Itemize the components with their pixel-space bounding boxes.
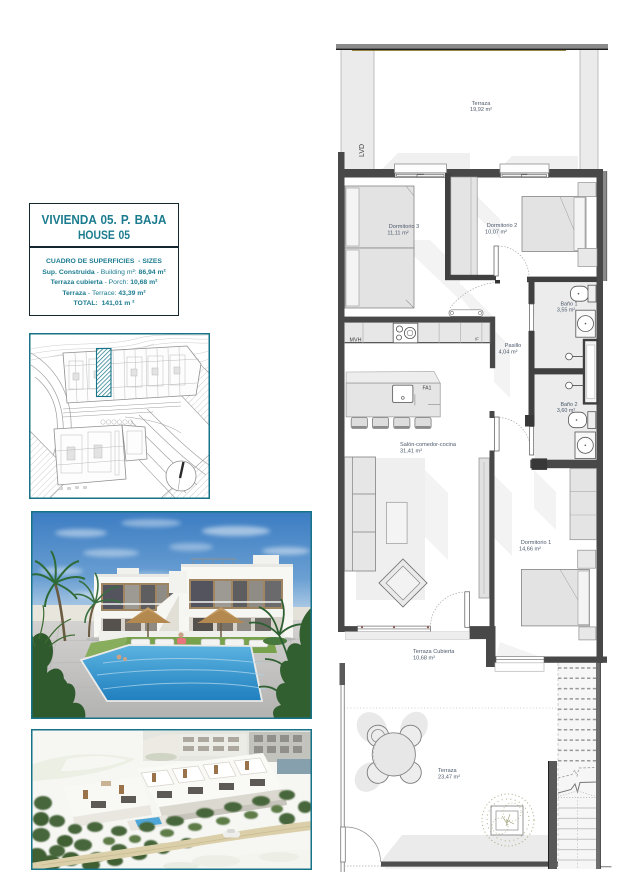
svg-text:Terraza: Terraza <box>438 768 458 774</box>
svg-text:10,07 m²: 10,07 m² <box>485 230 507 236</box>
svg-text:11,11 m²: 11,11 m² <box>387 231 408 237</box>
svg-text:FA1: FA1 <box>423 386 432 392</box>
svg-text:Terraza Cubierta: Terraza Cubierta <box>413 649 455 655</box>
svg-text:23,47 m²: 23,47 m² <box>438 775 460 781</box>
svg-text:LVD: LVD <box>359 144 366 157</box>
svg-text:Dormitorio 3: Dormitorio 3 <box>389 224 419 230</box>
svg-text:Pasillo: Pasillo <box>505 343 521 349</box>
svg-text:19,92 m²: 19,92 m² <box>470 107 492 113</box>
svg-text:Dormitorio 2: Dormitorio 2 <box>487 223 517 229</box>
svg-text:10,68 m²: 10,68 m² <box>413 656 435 662</box>
svg-text:4,04 m²: 4,04 m² <box>499 350 518 356</box>
svg-text:14,66 m²: 14,66 m² <box>519 547 541 553</box>
svg-text:31,41 m²: 31,41 m² <box>400 449 422 455</box>
svg-text:IF: IF <box>475 337 479 342</box>
svg-text:MVH: MVH <box>350 338 362 344</box>
svg-text:Dormitorio 1: Dormitorio 1 <box>521 540 551 546</box>
svg-text:3,55 m²: 3,55 m² <box>557 308 575 314</box>
svg-text:3,60 m²: 3,60 m² <box>557 408 575 414</box>
svg-text:Salón-comedor-cocina: Salón-comedor-cocina <box>400 442 457 448</box>
